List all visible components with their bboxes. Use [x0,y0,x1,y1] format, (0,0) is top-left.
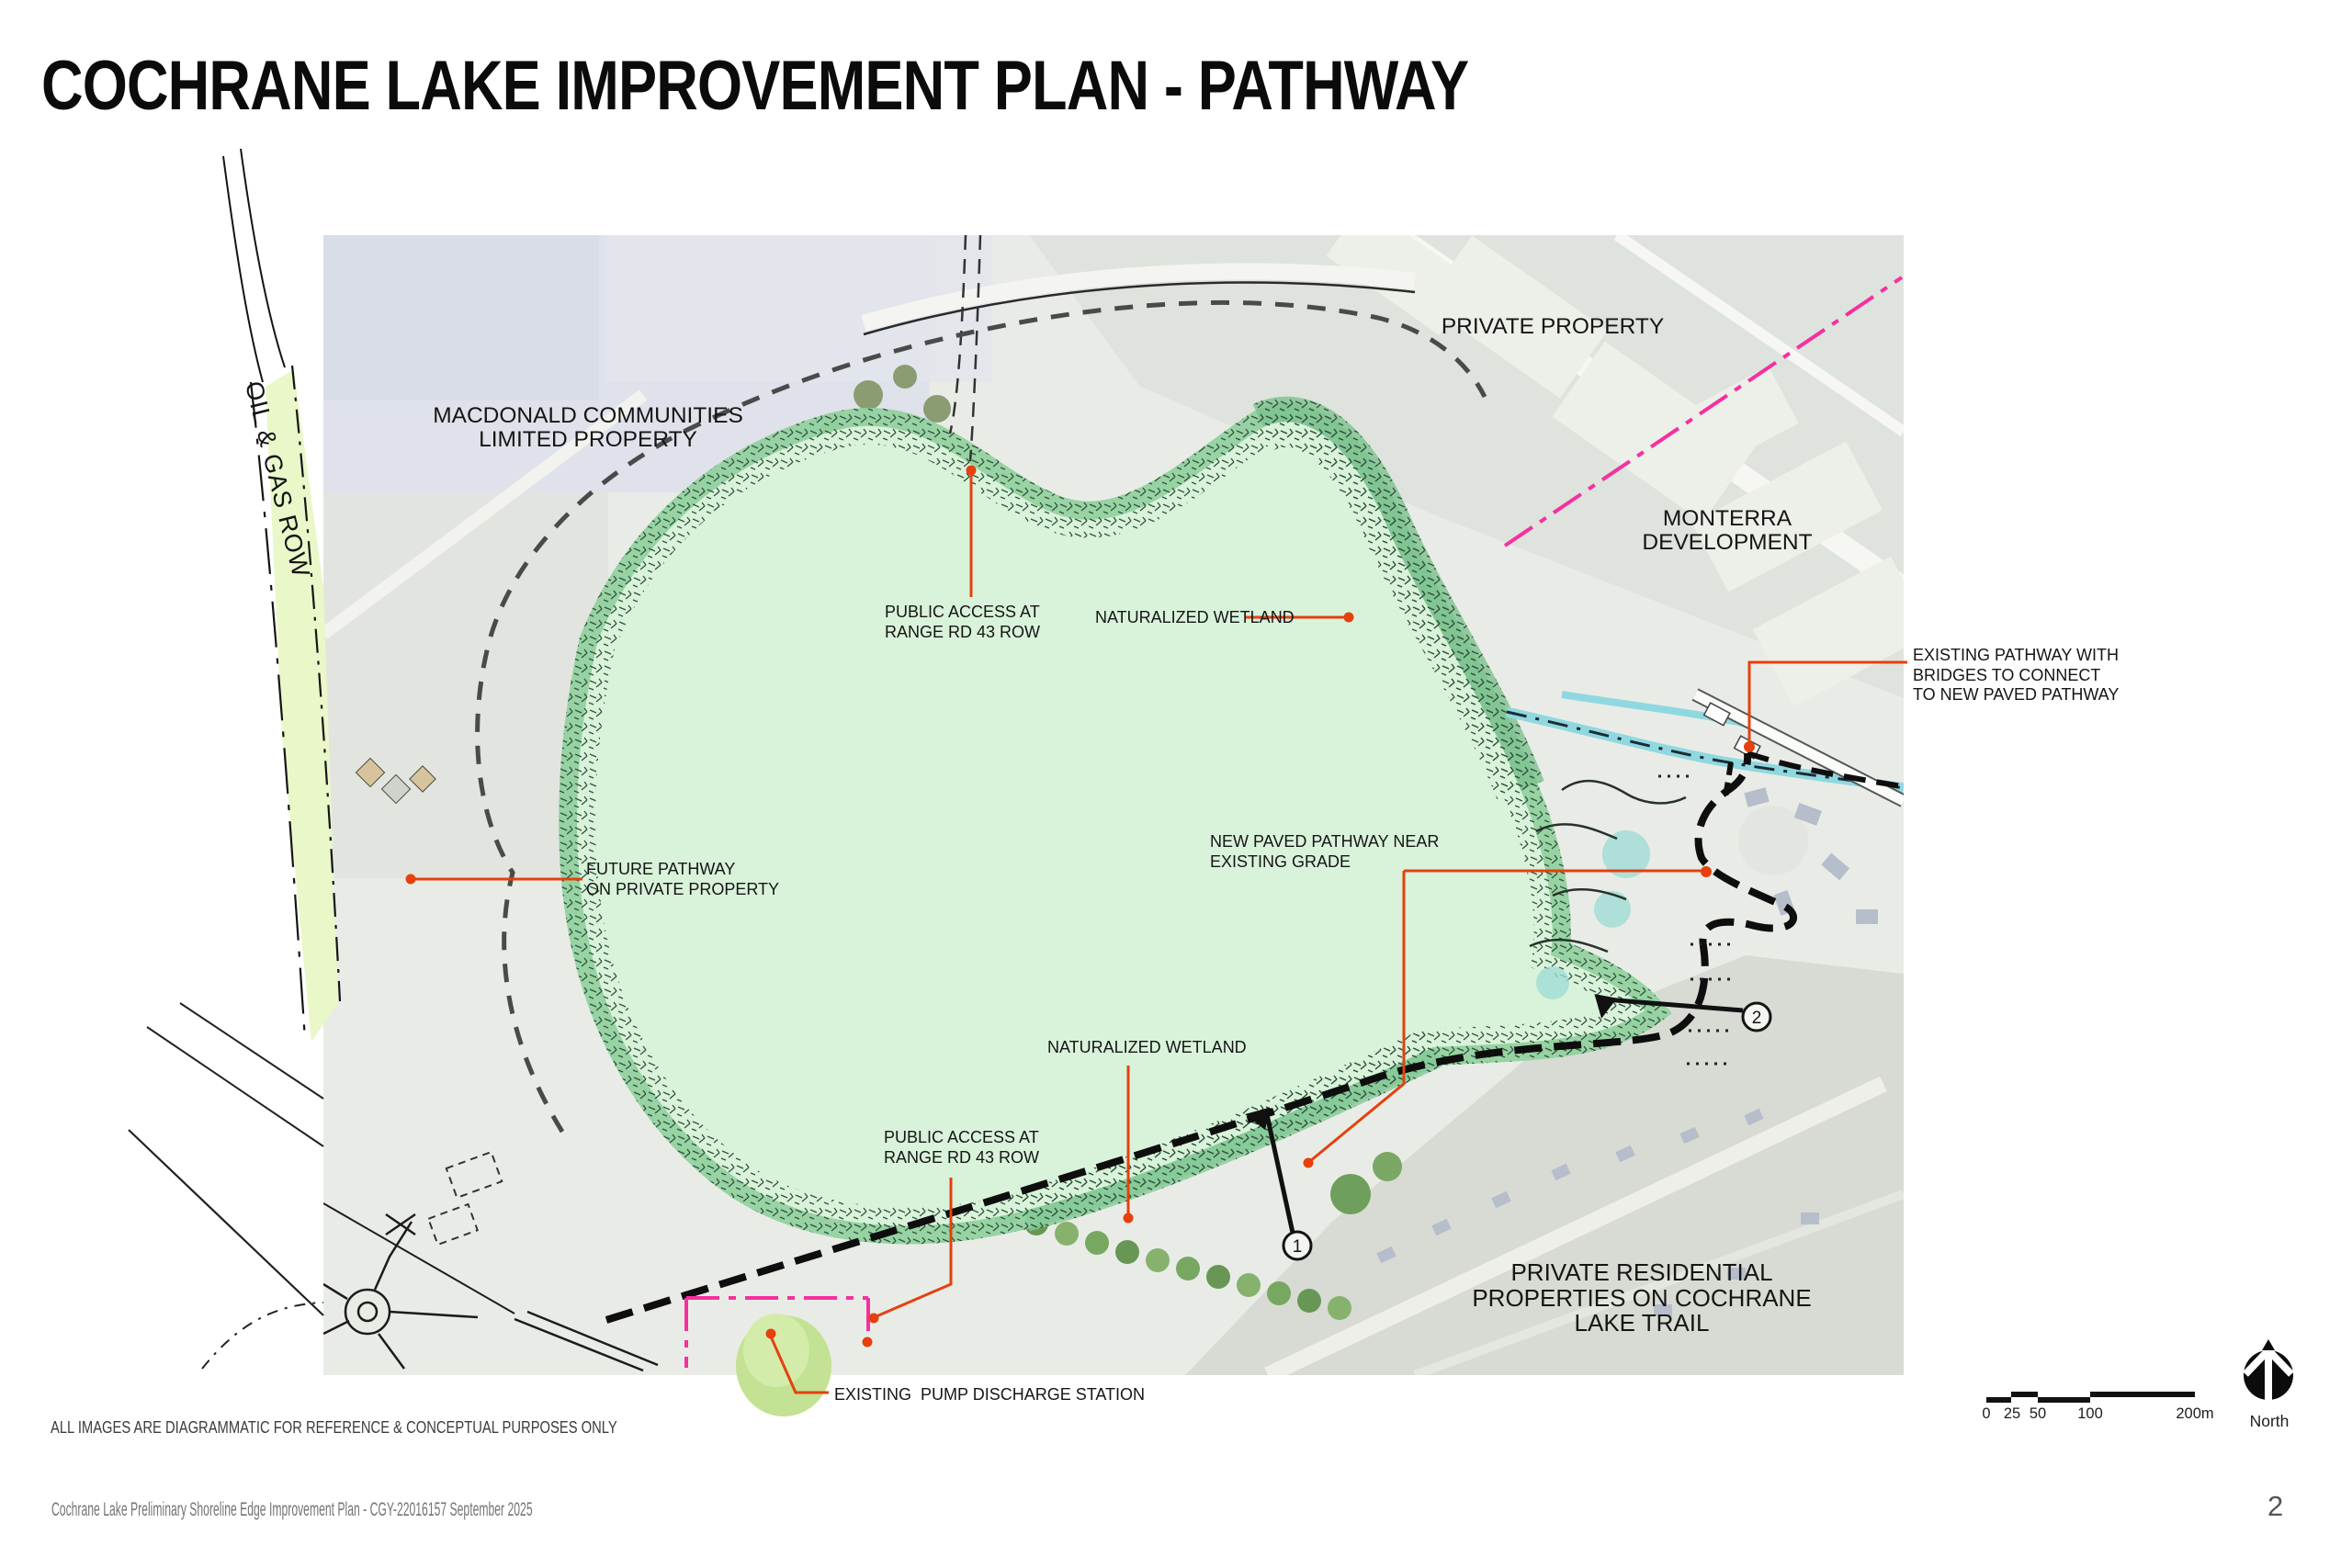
label-macdonald-property: MACDONALD COMMUNITIES LIMITED PROPERTY [433,404,743,452]
annotation-public-access-south: PUBLIC ACCESS AT RANGE RD 43 ROW [884,1128,1039,1168]
annotation-existing-pathway-bridges: EXISTING PATHWAY WITH BRIDGES TO CONNECT… [1913,646,2119,705]
annotation-future-pathway: FUTURE PATHWAY ON PRIVATE PROPERTY [586,860,779,899]
label-monterra-development: MONTERRA DEVELOPMENT [1642,507,1812,555]
north-arrow-icon [2244,1339,2293,1402]
oil-gas-row-strip [129,149,340,1369]
annotation-new-paved-pathway: NEW PAVED PATHWAY NEAR EXISTING GRADE [1210,832,1439,872]
scale-label-100: 100 [2077,1405,2103,1423]
disclaimer-text: ALL IMAGES ARE DIAGRAMMATIC FOR REFERENC… [51,1418,617,1438]
scale-bar [1986,1392,2195,1403]
scale-label-25: 25 [2004,1405,2020,1423]
annotation-naturalized-wetland-south: NATURALIZED WETLAND [1047,1038,1247,1058]
label-private-property: PRIVATE PROPERTY [1442,315,1664,339]
page-title: COCHRANE LAKE IMPROVEMENT PLAN - PATHWAY [41,46,1468,126]
north-label: North [2250,1412,2290,1431]
slide-pathway-plan: 1 2 COCHRANE LAKE IMPROVEMENT PLAN - PAT… [0,0,2352,1568]
marker-1-number: 1 [1293,1237,1303,1257]
site-plan-map: 1 2 [0,0,2352,1568]
annotation-public-access-north: PUBLIC ACCESS AT RANGE RD 43 ROW [885,603,1040,642]
marker-2-number: 2 [1752,1009,1762,1028]
scale-label-50: 50 [2030,1405,2046,1423]
scale-label-200m: 200m [2176,1405,2213,1423]
label-private-residential: PRIVATE RESIDENTIAL PROPERTIES ON COCHRA… [1472,1260,1811,1337]
page-number: 2 [2267,1490,2283,1523]
annotation-naturalized-wetland-north: NATURALIZED WETLAND [1095,608,1295,628]
footer-text: Cochrane Lake Preliminary Shoreline Edge… [51,1499,533,1521]
annotation-pump-station: EXISTING PUMP DISCHARGE STATION [834,1385,1145,1405]
scale-label-0: 0 [1982,1405,1990,1423]
